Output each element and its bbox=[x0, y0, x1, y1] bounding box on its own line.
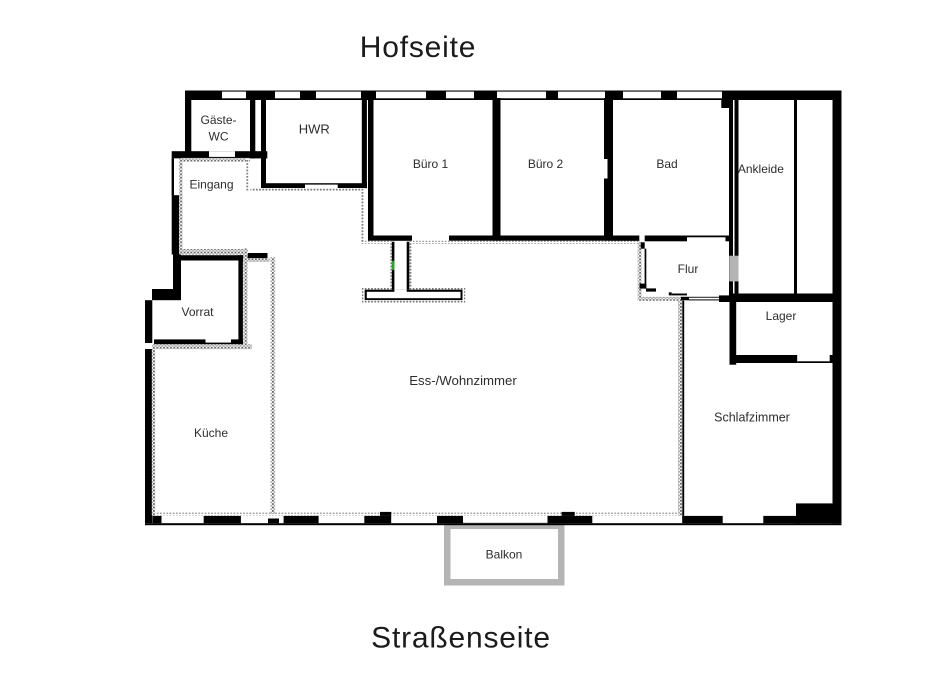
svg-text:Bad: Bad bbox=[656, 157, 677, 171]
svg-text:Vorrat: Vorrat bbox=[181, 305, 214, 319]
svg-text:WC: WC bbox=[209, 129, 229, 143]
svg-text:Lager: Lager bbox=[766, 309, 797, 323]
svg-text:Küche: Küche bbox=[194, 426, 228, 440]
svg-text:Ankleide: Ankleide bbox=[738, 162, 784, 176]
svg-text:Schlafzimmer: Schlafzimmer bbox=[714, 411, 790, 425]
svg-text:Flur: Flur bbox=[678, 262, 699, 276]
svg-text:HWR: HWR bbox=[299, 121, 330, 136]
svg-text:Gäste-: Gäste- bbox=[200, 113, 236, 127]
svg-text:Ess-/Wohnzimmer: Ess-/Wohnzimmer bbox=[409, 373, 517, 388]
svg-text:Büro 1: Büro 1 bbox=[413, 157, 449, 171]
svg-text:Eingang: Eingang bbox=[189, 178, 233, 192]
svg-text:Balkon: Balkon bbox=[486, 548, 523, 562]
svg-text:Büro 2: Büro 2 bbox=[528, 157, 564, 171]
svg-text:Straßenseite: Straßenseite bbox=[371, 622, 551, 655]
svg-text:Hofseite: Hofseite bbox=[360, 31, 476, 64]
